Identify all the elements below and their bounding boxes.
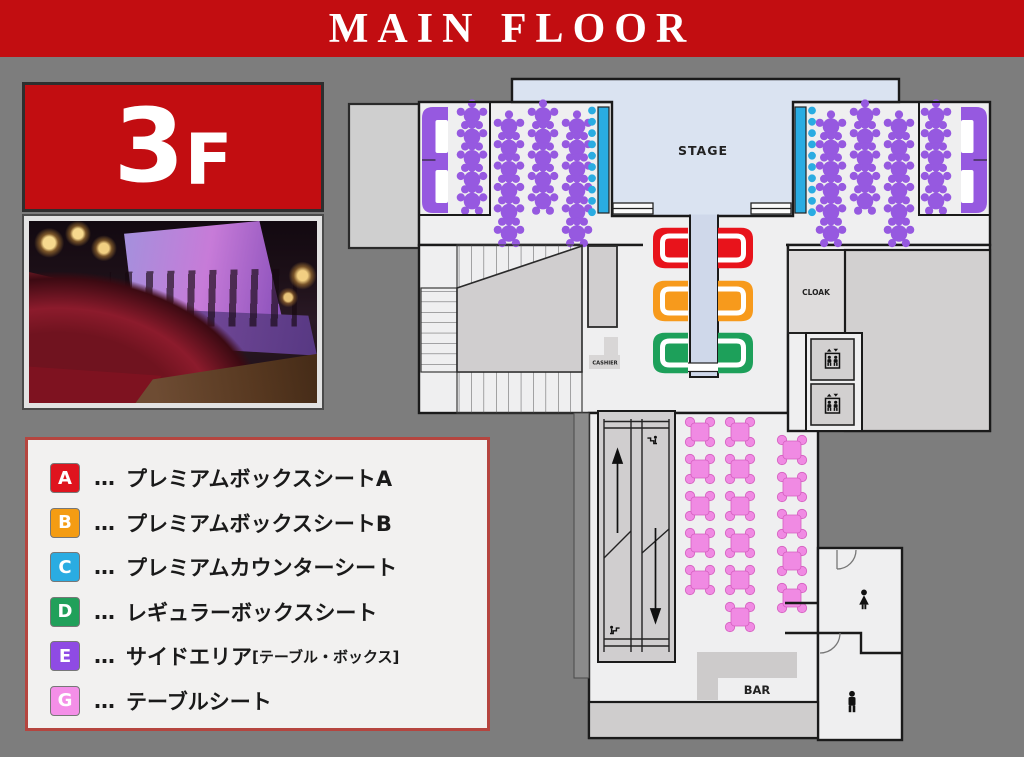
lower-wall-band [574,413,589,678]
runway-step [685,363,723,372]
back-of-house [845,250,990,431]
bottom-service-strip [589,702,818,738]
page: MAIN FLOOR 3 F A … プレミアムボックスシートA B … プ [0,0,1024,757]
bar-label: BAR [744,683,771,697]
cashier-label: CASHIER [592,361,617,367]
escalators [598,411,675,662]
side-room [349,104,419,248]
floor-map: STAGE [0,0,1024,757]
runway [690,215,718,378]
cloak-label: CLOAK [802,288,831,297]
elevator-2 [811,384,854,425]
elevator-1 [811,339,854,380]
stage-label: STAGE [678,143,728,158]
